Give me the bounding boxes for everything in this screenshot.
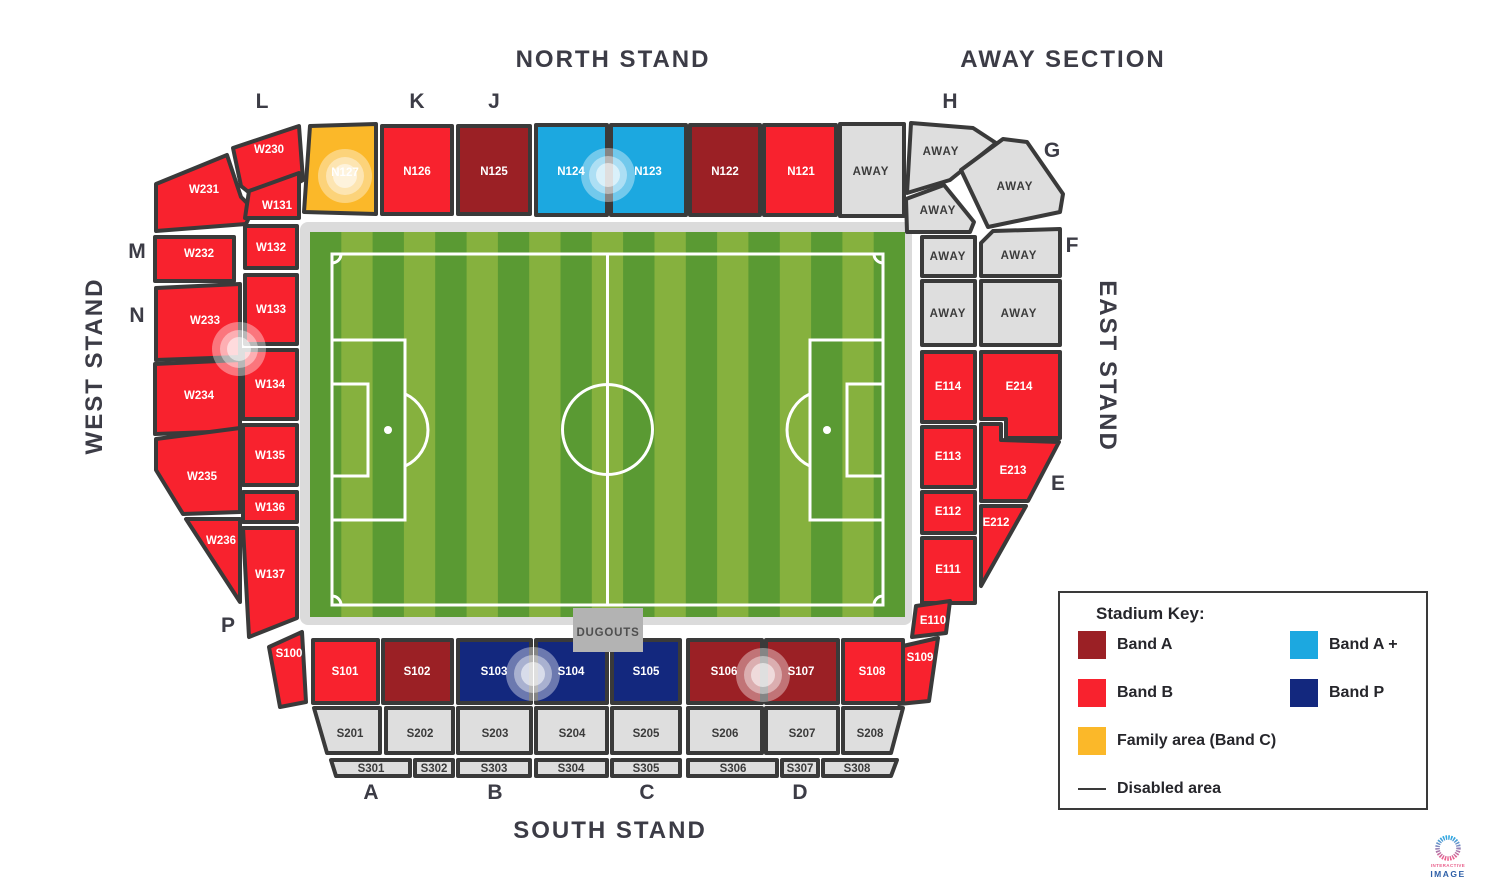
section-away-8[interactable] <box>981 281 1060 345</box>
stand-letter-l: L <box>256 90 269 114</box>
pitch-stripe <box>717 232 748 617</box>
section-away-1[interactable] <box>840 124 904 216</box>
section-e113[interactable] <box>922 427 975 487</box>
section-s308[interactable] <box>823 760 897 776</box>
west-stand-title: WEST STAND <box>81 278 109 455</box>
section-s203[interactable] <box>458 708 531 753</box>
section-n121[interactable] <box>764 125 836 215</box>
section-w132[interactable] <box>245 226 297 268</box>
pitch-stripe <box>655 232 686 617</box>
section-s108[interactable] <box>843 640 903 703</box>
south-stand-title: SOUTH STAND <box>513 817 707 845</box>
pitch-stripe <box>529 232 560 617</box>
disabled-area-marker[interactable] <box>736 648 790 702</box>
section-e212[interactable] <box>981 506 1026 586</box>
dugouts-box <box>573 608 643 652</box>
disabled-ring <box>751 663 775 687</box>
section-s102[interactable] <box>383 640 452 703</box>
section-w137[interactable] <box>243 528 297 637</box>
legend-item-family-area: Family area (Band C) <box>1078 727 1276 755</box>
away-section-title: AWAY SECTION <box>960 46 1165 74</box>
stand-letter-m: M <box>128 240 146 264</box>
disabled-area-marker[interactable] <box>318 149 372 203</box>
penalty-spot <box>823 426 831 434</box>
section-s201[interactable] <box>314 708 380 753</box>
section-n122[interactable] <box>690 125 760 215</box>
stand-letter-d: D <box>792 781 807 805</box>
section-w136[interactable] <box>243 492 297 522</box>
stand-letter-b: B <box>487 781 502 805</box>
band-a-swatch <box>1078 631 1106 659</box>
legend-item-disabled-area: Disabled area <box>1078 775 1221 803</box>
section-w135[interactable] <box>243 425 297 485</box>
east-stand-title: EAST STAND <box>1093 280 1121 452</box>
stand-letter-j: J <box>488 90 500 114</box>
section-away-5[interactable] <box>922 237 975 276</box>
section-w232[interactable] <box>155 237 234 281</box>
legend-label-band-p: Band P <box>1329 684 1384 702</box>
section-s307[interactable] <box>782 760 818 776</box>
legend-label-band-a: Band A <box>1117 636 1172 654</box>
legend-item-band-p: Band P <box>1290 679 1384 707</box>
section-s101[interactable] <box>313 640 378 703</box>
stand-letter-h: H <box>942 90 957 114</box>
stand-letter-p: P <box>221 614 235 638</box>
section-e114[interactable] <box>922 352 975 422</box>
disabled-ring <box>596 163 620 187</box>
section-s206[interactable] <box>688 708 762 753</box>
logo-ring-icon <box>1433 833 1463 863</box>
section-n125[interactable] <box>458 126 530 214</box>
disabled-ring <box>521 662 545 686</box>
section-e112[interactable] <box>922 492 975 533</box>
logo-line2: IMAGE <box>1424 870 1472 879</box>
family-area-swatch <box>1078 727 1106 755</box>
legend-item-band-b: Band B <box>1078 679 1173 707</box>
logo-line1: INTERACTIVE <box>1424 864 1472 869</box>
band-a-plus-swatch <box>1290 631 1318 659</box>
interactive-image-logo: INTERACTIVE IMAGE <box>1424 833 1472 878</box>
stand-letter-g: G <box>1044 139 1060 163</box>
north-stand-title: NORTH STAND <box>516 46 711 74</box>
pitch-stripe <box>780 232 811 617</box>
pitch-stripe <box>467 232 498 617</box>
legend-label-family-area: Family area (Band C) <box>1117 732 1276 750</box>
section-away-6[interactable] <box>981 229 1060 276</box>
legend-item-band-a: Band A <box>1078 631 1172 659</box>
disabled-area-marker[interactable] <box>581 148 635 202</box>
legend-label-band-b: Band B <box>1117 684 1173 702</box>
band-p-swatch <box>1290 679 1318 707</box>
stand-letter-f: F <box>1066 234 1079 258</box>
section-s204[interactable] <box>536 708 607 753</box>
section-e110[interactable] <box>912 601 950 637</box>
section-w235[interactable] <box>156 428 240 514</box>
stand-letter-c: C <box>639 781 654 805</box>
stadium-key-legend: Stadium Key: Band A Band A + Band B Band… <box>1058 591 1428 810</box>
disabled-area-marker[interactable] <box>212 322 266 376</box>
section-s302[interactable] <box>415 760 453 776</box>
section-s303[interactable] <box>458 760 530 776</box>
pitch <box>300 222 912 625</box>
section-s208[interactable] <box>843 708 903 753</box>
dugouts: DUGOUTS <box>573 608 643 652</box>
legend-label-band-a-plus: Band A + <box>1329 636 1398 654</box>
band-b-swatch <box>1078 679 1106 707</box>
legend-label-disabled-area: Disabled area <box>1117 780 1221 798</box>
stand-letter-a: A <box>363 781 378 805</box>
section-s100[interactable] <box>269 632 306 707</box>
section-s205[interactable] <box>612 708 680 753</box>
legend-item-band-a-plus: Band A + <box>1290 631 1398 659</box>
section-away-7[interactable] <box>922 281 975 345</box>
stand-letter-k: K <box>409 90 424 114</box>
section-s207[interactable] <box>766 708 838 753</box>
legend-title: Stadium Key: <box>1096 604 1205 624</box>
disabled-ring <box>333 164 357 188</box>
section-s306[interactable] <box>688 760 777 776</box>
stadium-seat-map-page: N127 N126 N125 N124 N123 N122 N121 AWAY … <box>0 0 1500 890</box>
section-n126[interactable] <box>382 126 452 214</box>
section-e111[interactable] <box>922 538 975 603</box>
disabled-area-line-icon <box>1078 788 1106 790</box>
section-s304[interactable] <box>536 760 607 776</box>
stand-letter-n: N <box>129 304 144 328</box>
section-s305[interactable] <box>612 760 680 776</box>
section-s202[interactable] <box>386 708 453 753</box>
section-w236[interactable] <box>186 519 240 602</box>
stand-letter-e: E <box>1051 472 1065 496</box>
pitch-stripe <box>404 232 435 617</box>
section-s301[interactable] <box>331 760 410 776</box>
disabled-ring <box>227 337 251 361</box>
penalty-spot <box>384 426 392 434</box>
disabled-area-marker[interactable] <box>506 647 560 701</box>
